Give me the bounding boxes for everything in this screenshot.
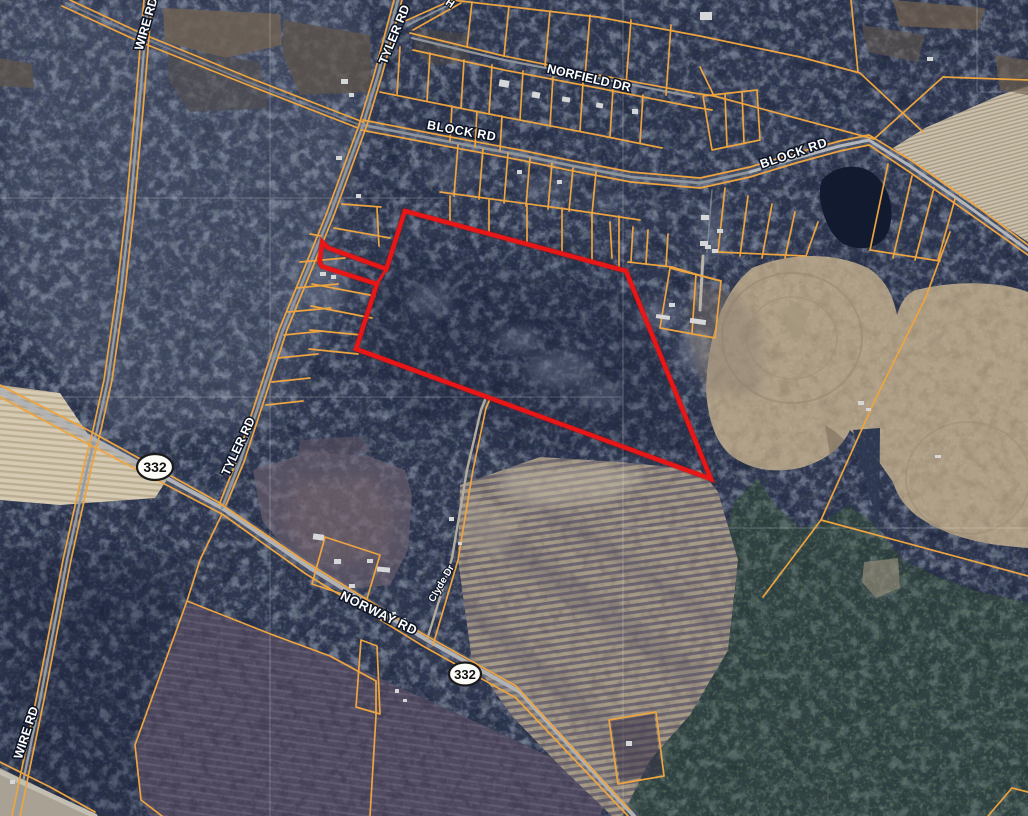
svg-text:332: 332 (143, 459, 167, 475)
svg-text:332: 332 (454, 667, 476, 682)
